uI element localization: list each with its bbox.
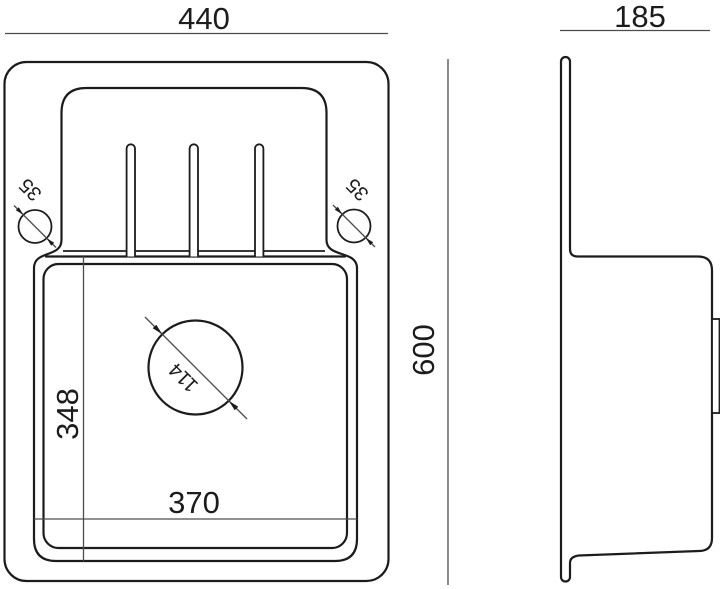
sink-technical-drawing: 35 35 114 440 600 348 370: [0, 0, 720, 589]
drainer-rib: [127, 144, 135, 256]
drainer-rib: [190, 144, 198, 256]
overall-length-label: 600: [406, 324, 441, 376]
overall-height-label: 185: [614, 0, 666, 34]
tap-hole-right-diameter-label: 35: [342, 174, 373, 205]
side-profile-outline: [561, 57, 712, 582]
tap-hole-left-diameter-label: 35: [15, 174, 46, 205]
bowl-width-label: 370: [168, 485, 220, 520]
drawing-sheet: 35 35 114 440 600 348 370: [0, 0, 720, 589]
bowl-length-label: 348: [50, 388, 85, 440]
mounting-clip: [712, 319, 720, 413]
drainer-rib: [255, 144, 263, 256]
top-view: 35 35 114 440 600 348 370: [5, 1, 449, 585]
overall-width-label: 440: [178, 1, 230, 36]
drain-hole-diameter-label: 114: [165, 358, 203, 396]
side-view: 185: [560, 0, 720, 582]
